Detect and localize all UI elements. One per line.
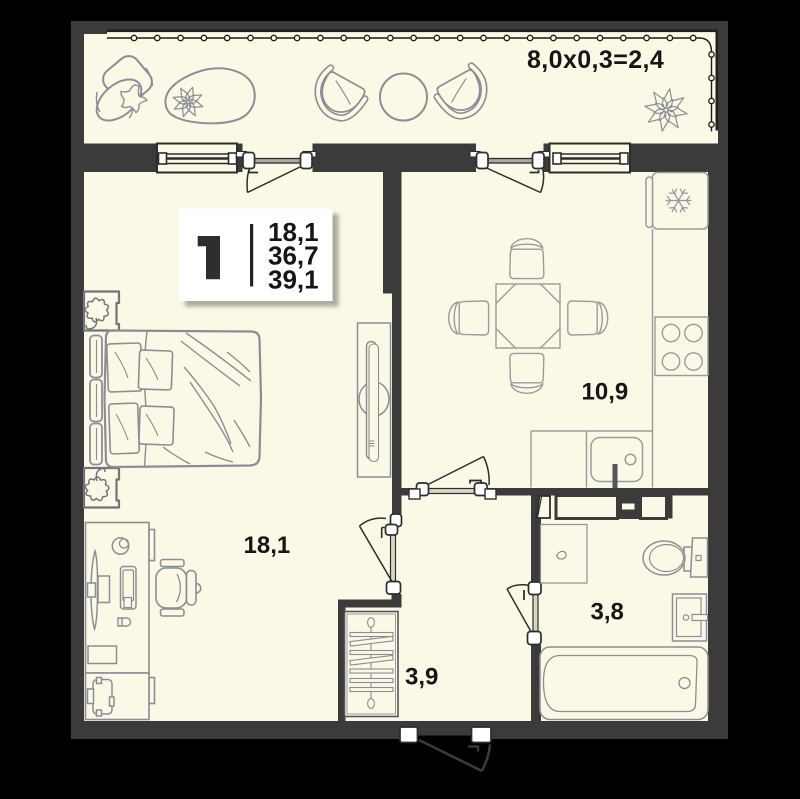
svg-text:3,8: 3,8	[591, 599, 624, 626]
svg-text:10,9: 10,9	[582, 379, 629, 406]
svg-text:39,1: 39,1	[268, 264, 319, 294]
svg-text:3,9: 3,9	[405, 664, 438, 691]
svg-text:8,0x0,3=2,4: 8,0x0,3=2,4	[527, 46, 664, 74]
svg-text:18,1: 18,1	[244, 532, 291, 559]
